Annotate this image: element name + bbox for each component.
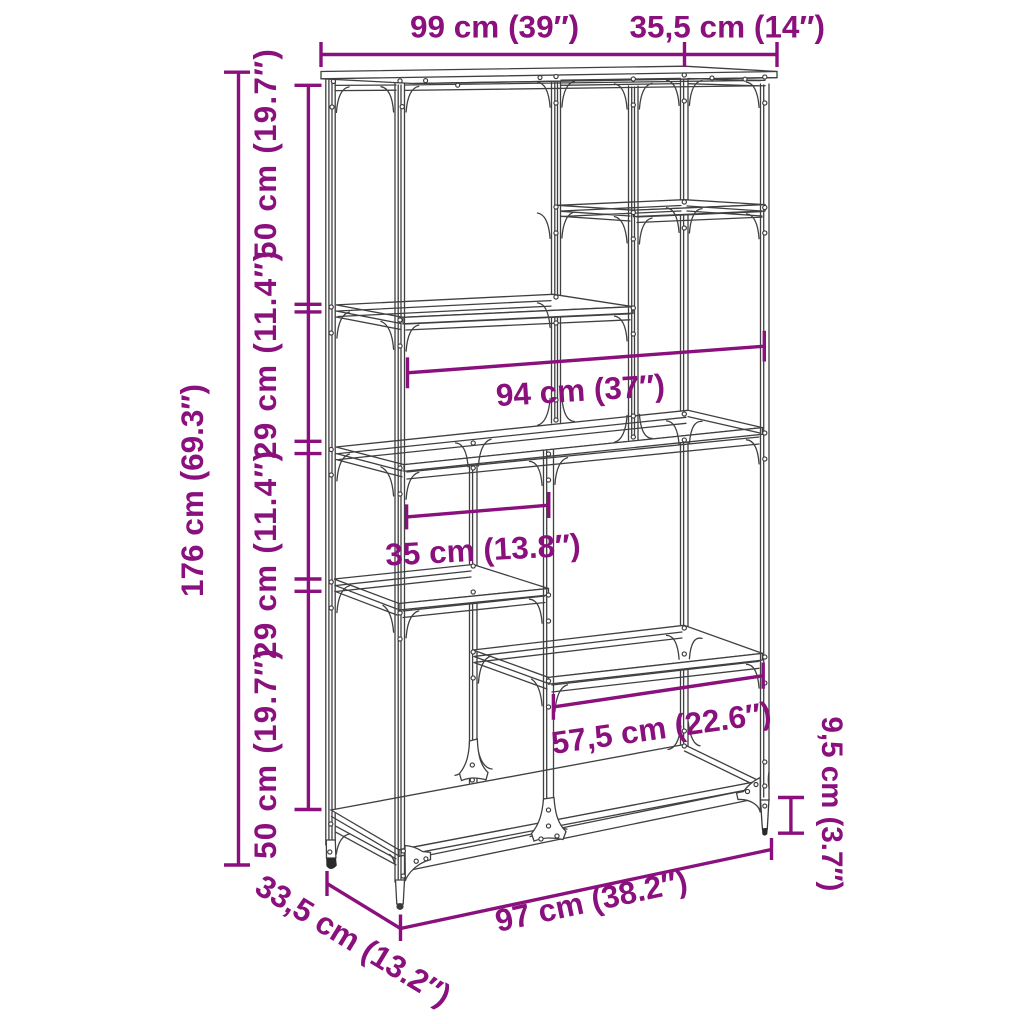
svg-text:29 cm (11.4″): 29 cm (11.4″) [247,250,283,459]
svg-text:99 cm (39″): 99 cm (39″) [410,9,579,45]
svg-text:50 cm (19.7″): 50 cm (19.7″) [247,648,283,859]
svg-text:50 cm (19.7″): 50 cm (19.7″) [247,48,283,259]
svg-text:35,5 cm (14″): 35,5 cm (14″) [630,9,825,45]
svg-text:176 cm (69.3″): 176 cm (69.3″) [174,384,210,597]
svg-text:9,5 cm (3.7″): 9,5 cm (3.7″) [815,717,848,892]
svg-text:29 cm (11.4″): 29 cm (11.4″) [247,450,283,659]
